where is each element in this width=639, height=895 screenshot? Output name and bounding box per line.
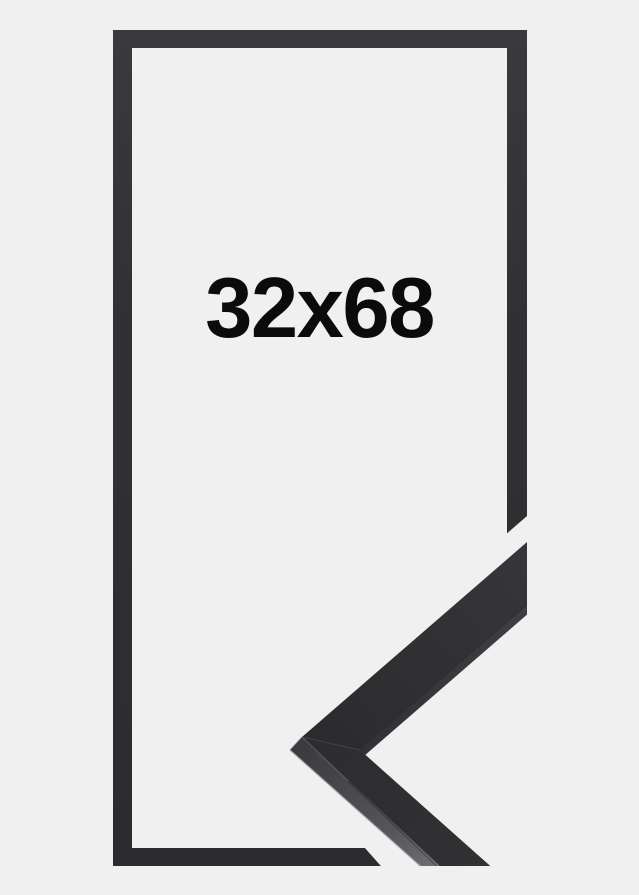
frame-graphic xyxy=(0,0,639,895)
size-label: 32x68 xyxy=(0,273,639,358)
frame-product-image: 32x68 xyxy=(0,0,639,895)
